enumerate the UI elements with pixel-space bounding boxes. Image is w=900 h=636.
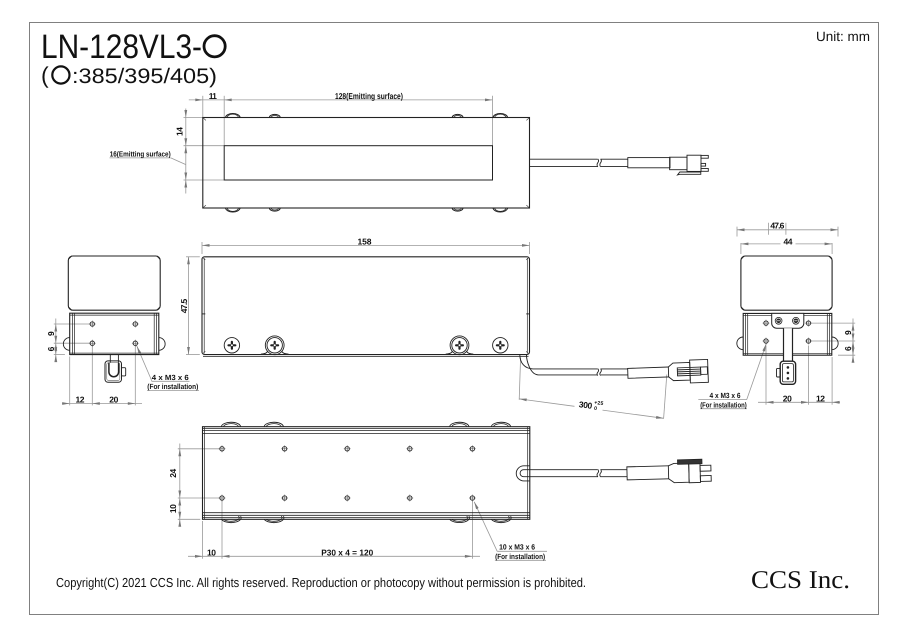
svg-text:(For installation): (For installation) bbox=[147, 382, 198, 391]
svg-text:44: 44 bbox=[784, 237, 793, 247]
svg-text:CCS Inc.: CCS Inc. bbox=[751, 565, 850, 594]
svg-text:6: 6 bbox=[46, 346, 56, 351]
svg-text:9: 9 bbox=[46, 331, 56, 336]
svg-text:47.5: 47.5 bbox=[179, 298, 189, 313]
svg-text:(: ( bbox=[41, 62, 49, 88]
svg-text::385/395/405): :385/395/405) bbox=[72, 65, 217, 88]
svg-text:16(Emitting surface): 16(Emitting surface) bbox=[110, 149, 171, 158]
svg-text:4 x M3 x 6: 4 x M3 x 6 bbox=[710, 391, 741, 400]
svg-text:9: 9 bbox=[843, 330, 853, 335]
svg-text:11: 11 bbox=[209, 91, 217, 101]
svg-text:20: 20 bbox=[109, 395, 118, 405]
svg-text:10 x M3 x 6: 10 x M3 x 6 bbox=[499, 543, 535, 552]
svg-text:12: 12 bbox=[76, 395, 85, 405]
svg-text:12: 12 bbox=[816, 393, 825, 403]
svg-text:0: 0 bbox=[594, 406, 598, 412]
svg-text:(For installation): (For installation) bbox=[495, 552, 545, 561]
svg-text:300: 300 bbox=[578, 399, 593, 411]
svg-text:10: 10 bbox=[207, 548, 216, 558]
svg-text:128(Emitting surface): 128(Emitting surface) bbox=[335, 91, 403, 101]
svg-text:10: 10 bbox=[168, 504, 178, 513]
svg-text:Copyright(C) 2021 CCS Inc. All: Copyright(C) 2021 CCS Inc. All rights re… bbox=[56, 575, 586, 590]
svg-text:24: 24 bbox=[168, 469, 178, 478]
svg-text:P30 x 4 = 120: P30 x 4 = 120 bbox=[321, 548, 373, 558]
svg-text:158: 158 bbox=[358, 236, 372, 246]
svg-text:LN-128VL3-: LN-128VL3- bbox=[41, 28, 202, 66]
svg-text:47.6: 47.6 bbox=[770, 221, 784, 231]
svg-text:20: 20 bbox=[783, 393, 792, 403]
svg-text:4 x M3 x 6: 4 x M3 x 6 bbox=[152, 373, 189, 382]
svg-text:6: 6 bbox=[843, 346, 853, 351]
svg-text:Unit: mm: Unit: mm bbox=[816, 29, 870, 44]
svg-text:(For installation): (For installation) bbox=[700, 400, 747, 409]
svg-text:14: 14 bbox=[175, 127, 185, 136]
